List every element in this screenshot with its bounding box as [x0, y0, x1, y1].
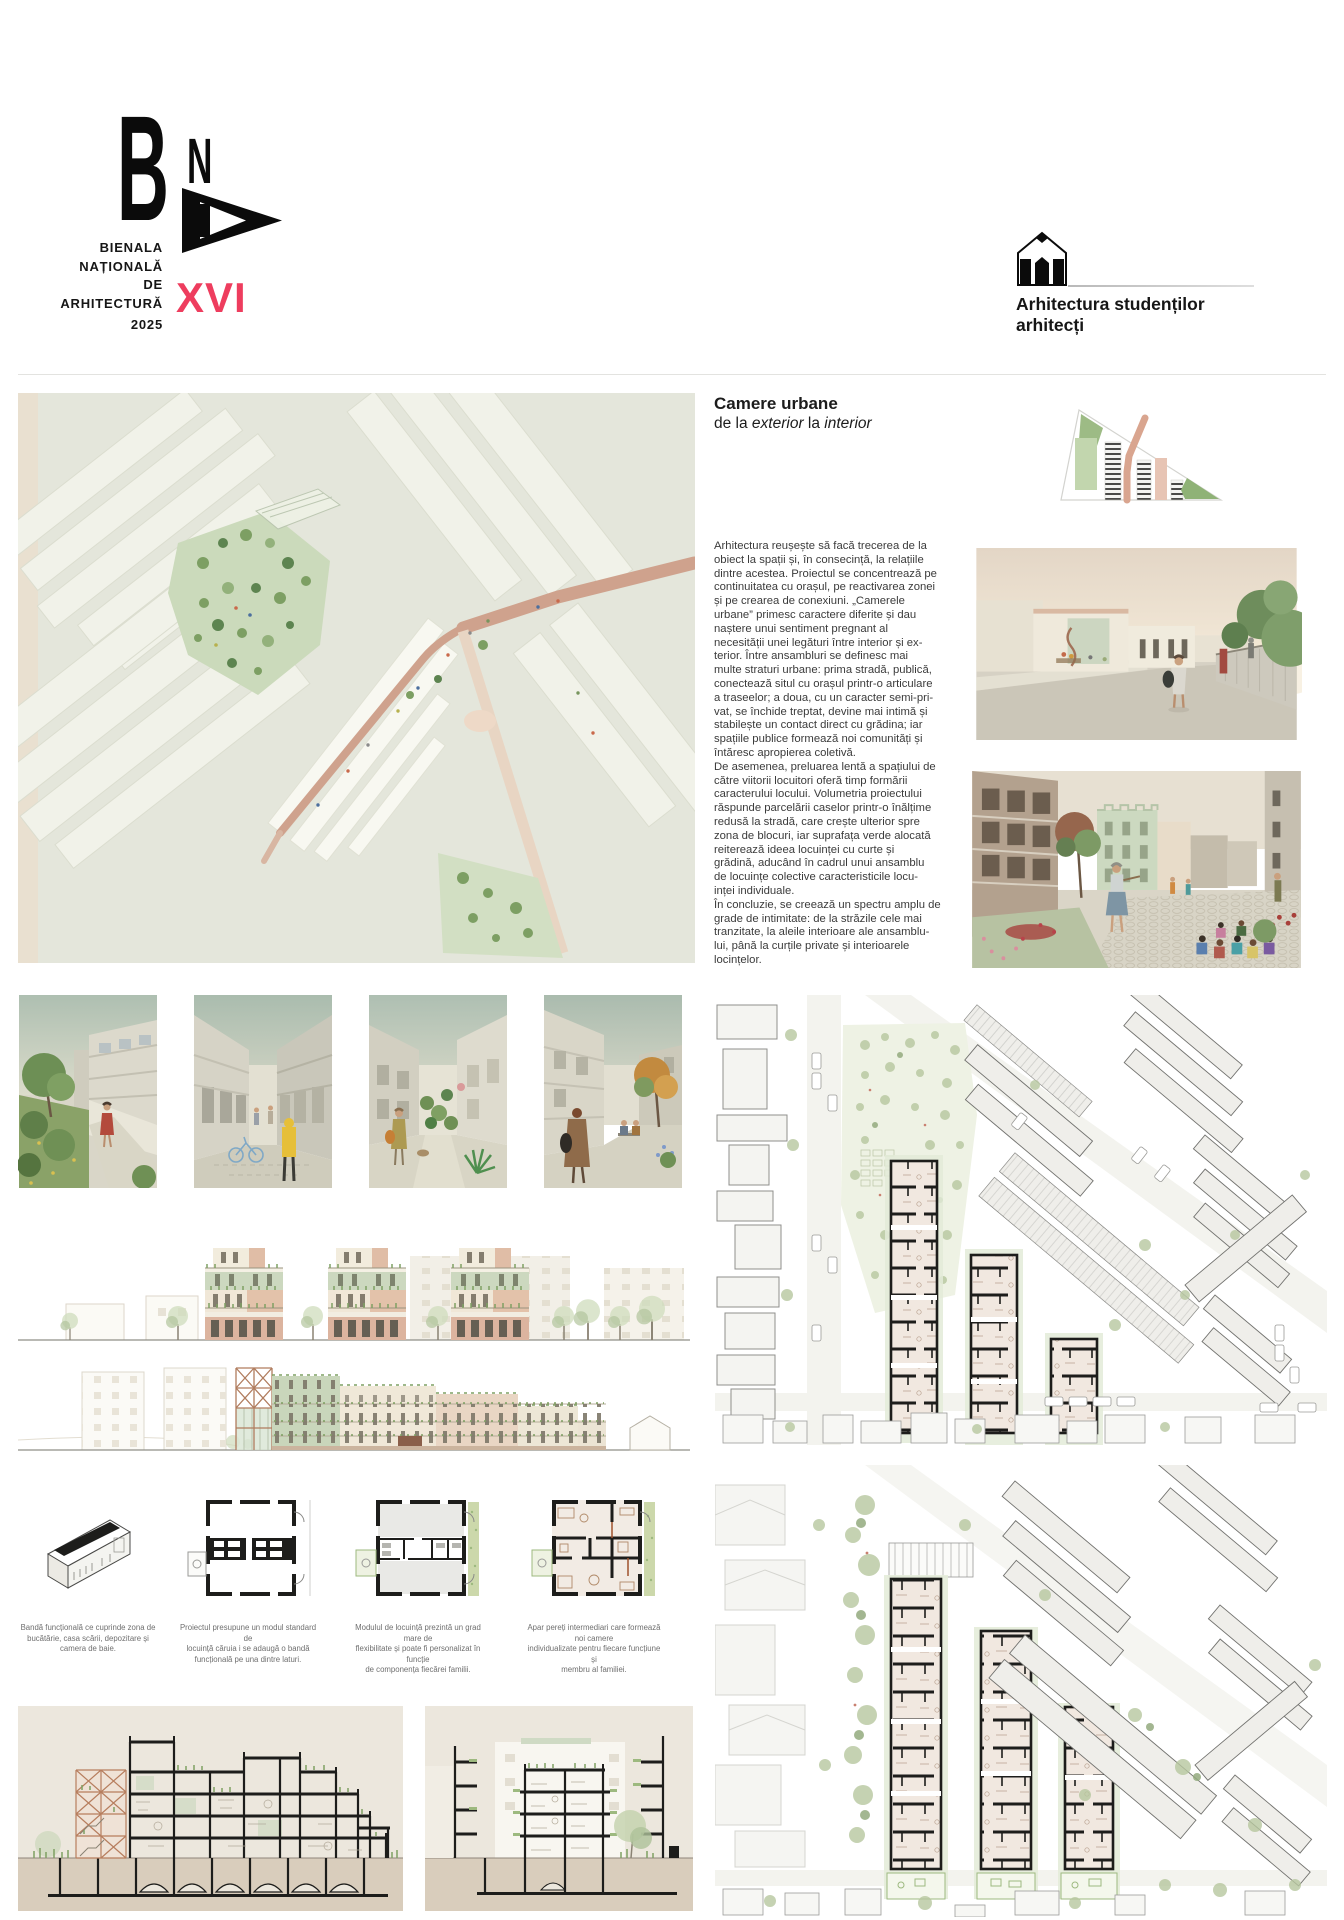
subtitle-interior: interior [824, 415, 871, 432]
site-strategy-diagram [1045, 398, 1235, 510]
street-elevation [18, 1232, 690, 1354]
logo-letter-a [182, 188, 282, 253]
brand-line-2: NAȚIONALĂ [20, 258, 163, 277]
alley-render [193, 995, 333, 1188]
project-subtitle: de la exterior la interior [714, 414, 872, 433]
brand-line-1: BIENALA [20, 239, 163, 258]
description-paragraph-3: În concluzie, se creează un spectru ampl… [714, 899, 972, 968]
cross-section [425, 1706, 693, 1911]
logo-letter-n: N [187, 125, 212, 197]
street-perspective-render [971, 548, 1302, 740]
individualized-rooms-plan [524, 1492, 664, 1604]
description-paragraph-1: Arhitectura reușește să facă trecerea de… [714, 540, 972, 761]
description-paragraph-2: De asemenea, preluarea lentă a spațiului… [714, 761, 972, 899]
plan-column-4: Apar pereți intermediari care formează n… [524, 1492, 664, 1676]
plan-caption-3: Modulul de locuință prezintă un grad mar… [348, 1623, 488, 1676]
subtitle-pre: de la [714, 415, 752, 432]
subtitle-exterior: exterior [752, 415, 804, 432]
functional-band-axonometric [18, 1492, 158, 1604]
plan-caption-2: Proiectul presupune un modul standard de… [178, 1623, 318, 1665]
garden-render [18, 995, 158, 1188]
brand-wordmark: BIENALA NAȚIONALĂ DE ARHITECTURĂ 2025 [20, 239, 163, 335]
category-rule [1068, 285, 1254, 287]
axonometric-site-view [18, 393, 695, 963]
edition-number: XVI [176, 274, 247, 322]
brand-year: 2025 [20, 316, 163, 335]
brand-line-4: ARHITECTURĂ [20, 295, 163, 314]
plan-caption-1: Bandă funcțională ce cuprinde zona de bu… [18, 1623, 158, 1655]
subtitle-mid: la [804, 415, 825, 432]
header-divider [18, 374, 1326, 375]
brand-line-3: DE [20, 276, 163, 295]
plan-caption-4: Apar pereți intermediari care formează n… [524, 1623, 664, 1676]
upper-floor-site-plan [715, 1465, 1327, 1917]
plan-column-2: Proiectul presupune un modul standard de… [178, 1492, 318, 1665]
standard-module-plan [178, 1492, 318, 1604]
ground-floor-site-plan [715, 995, 1327, 1445]
project-title: Camere urbane [714, 394, 838, 414]
plan-column-3: Modulul de locuință prezintă un grad mar… [348, 1492, 488, 1676]
poster-page: B N BIENALA NAȚIONALĂ DE ARHITECTURĂ 202… [0, 0, 1344, 1920]
courtyard-perspective-render [971, 771, 1302, 968]
pencil-house-icon [1016, 229, 1068, 287]
logo-letter-b: B [117, 88, 169, 252]
category-label: Arhitectura studenților arhitecți [1016, 294, 1276, 336]
project-description: Arhitectura reușește să facă trecerea de… [714, 540, 972, 968]
green-alley-render [368, 995, 508, 1188]
plan-column-1: Bandă funcțională ce cuprinde zona de bu… [18, 1492, 158, 1655]
longitudinal-section [18, 1706, 403, 1911]
flexible-module-plan [348, 1492, 488, 1604]
square-render [543, 995, 683, 1188]
long-elevation [18, 1356, 690, 1460]
